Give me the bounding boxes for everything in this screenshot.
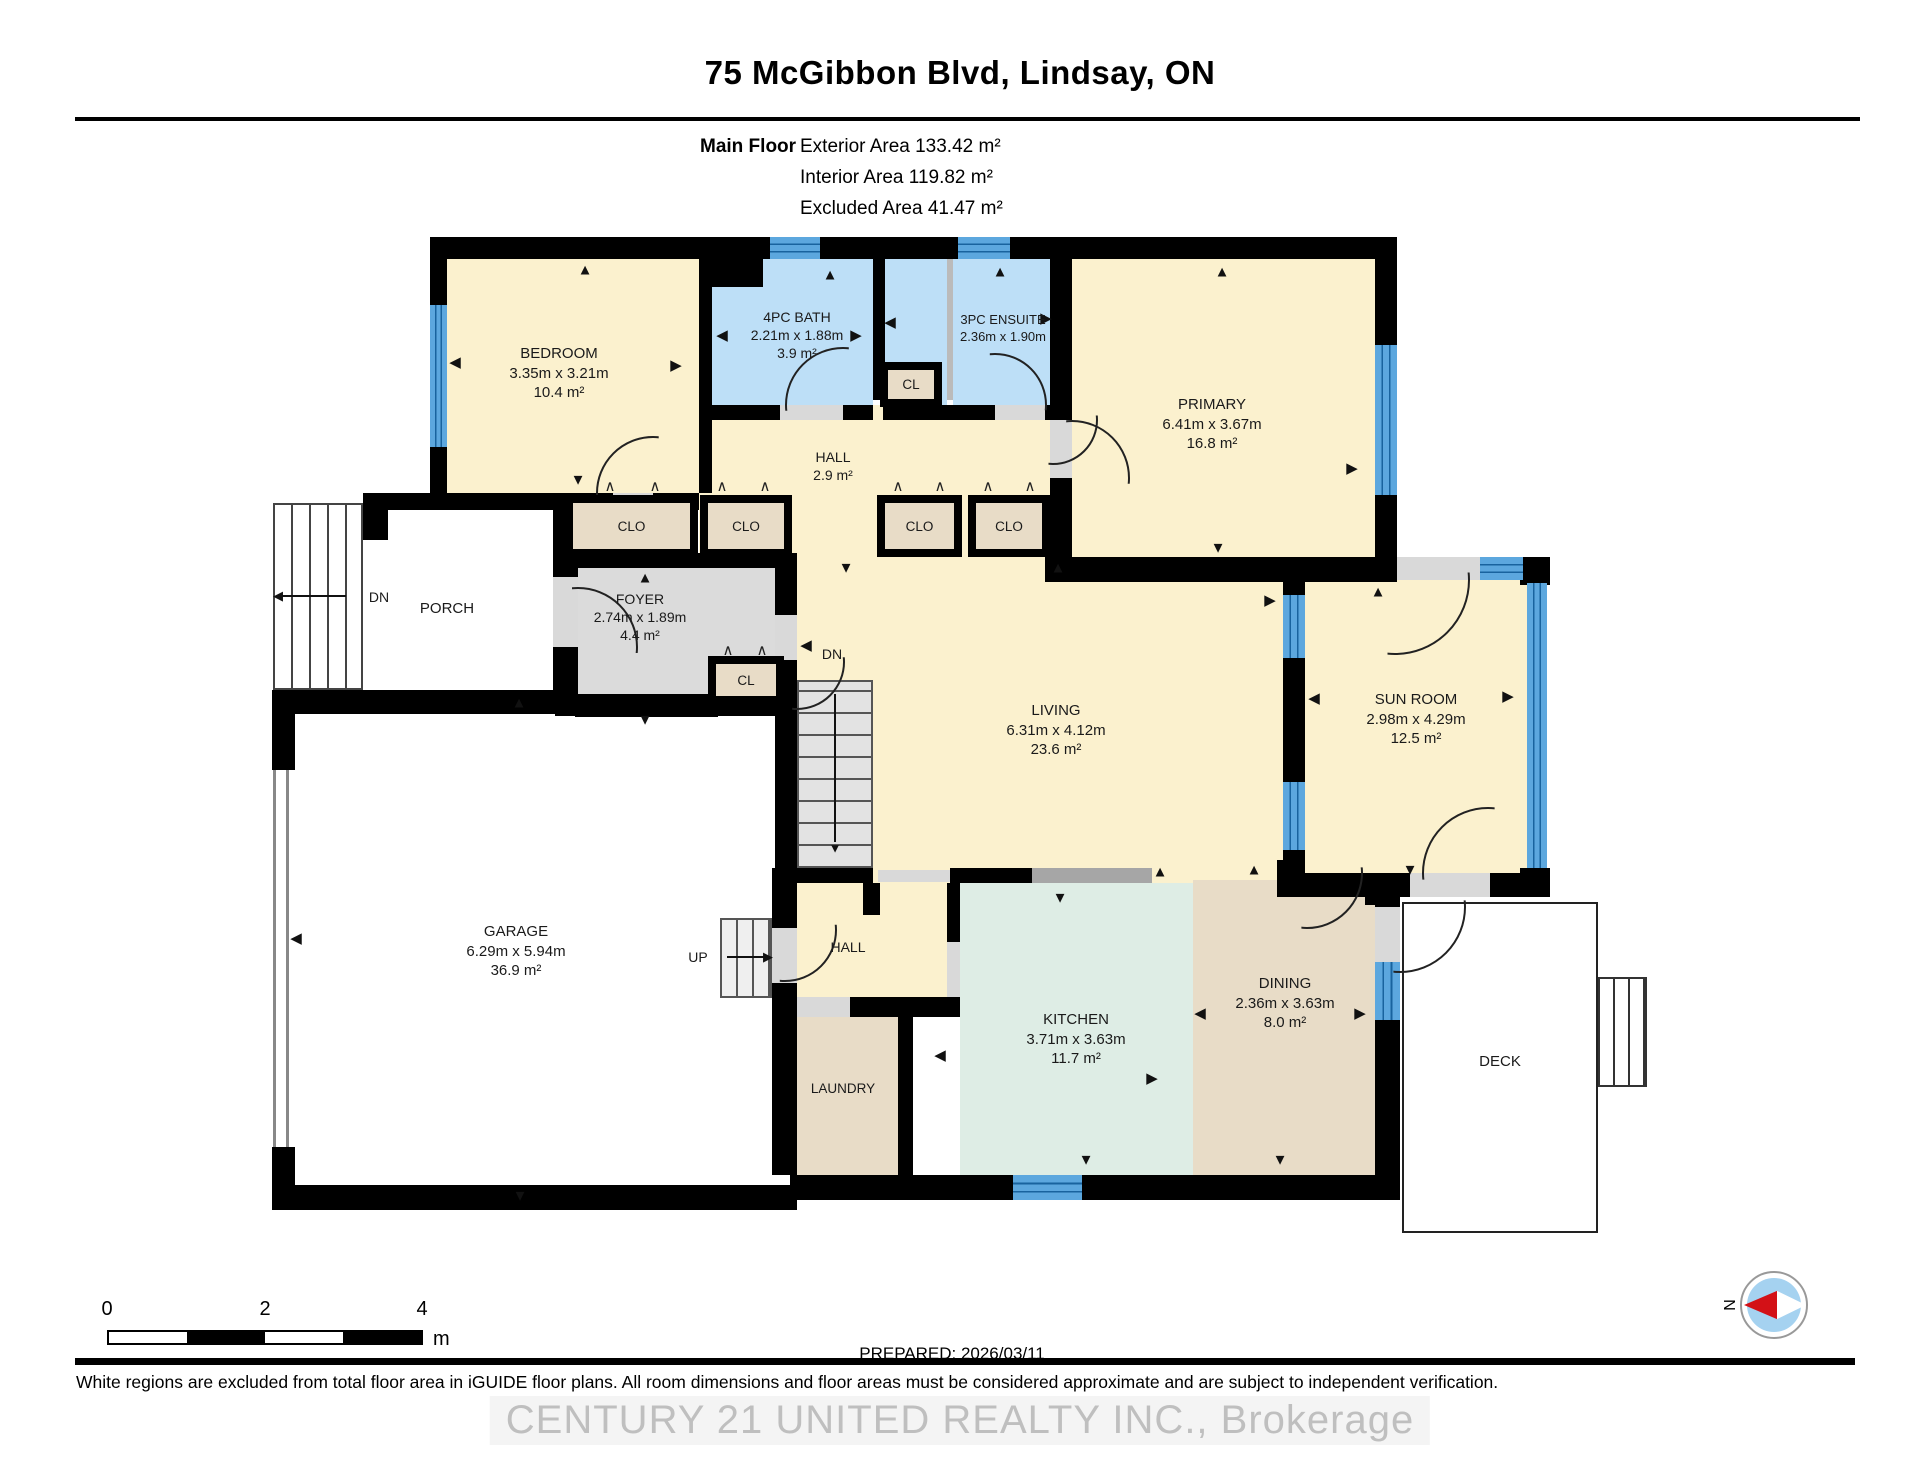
room-label-line: FOYER [594,590,687,608]
room-label-line: DN [369,588,389,606]
room-label-line: 2.98m x 4.29m [1366,710,1465,730]
room-label-line: DECK [1479,1052,1521,1072]
closet-label: CLO [618,519,646,534]
window [1375,345,1397,495]
wall [1277,860,1303,897]
direction-arrow: ◀ [800,636,812,654]
window [1013,1175,1082,1200]
room-label: LIVING6.31m x 4.12m23.6 m² [1006,701,1105,760]
room-label-line: KITCHEN [1026,1010,1125,1030]
room-label: KITCHEN3.71m x 3.63m11.7 m² [1026,1010,1125,1069]
room-label-line: BEDROOM [509,344,608,364]
closet-cl: CL [880,362,942,407]
room-label-line: DINING [1235,974,1334,994]
stair-arrow-line [282,595,346,597]
room-label-line: DN [822,645,842,663]
bifold-mark: ∧ [605,477,616,495]
wall [775,553,797,615]
wall [430,237,1397,259]
direction-arrow: ▲ [1153,864,1168,881]
direction-arrow: ◀ [884,313,896,331]
direction-arrow: ▶ [1354,1004,1366,1022]
wall [797,868,873,883]
bifold-mark: ∧ [983,477,994,495]
stair-arrow-head: ◀ [273,588,283,604]
window [1480,557,1523,580]
room-label-line: 11.7 m² [1026,1049,1125,1069]
wall [1050,259,1072,420]
wall [947,883,960,942]
closet-clo: CLO [968,495,1050,557]
bifold-mark: ∧ [1025,477,1036,495]
footer-divider [75,1358,1855,1365]
room-label-line: 3.71m x 3.63m [1026,1030,1125,1050]
room-label: UP [688,948,707,966]
door-opening [775,615,797,660]
bifold-mark: ∧ [935,477,946,495]
wall [272,1185,797,1210]
wall [1490,873,1550,897]
direction-arrow: ▶ [1502,687,1514,705]
direction-arrow: ▼ [1211,540,1226,557]
wall [1520,557,1550,585]
wall [1375,1020,1400,1175]
wall [1375,237,1397,345]
counter-strip [1030,868,1152,883]
scale-bar [107,1330,423,1345]
direction-arrow: ▲ [1051,560,1066,577]
room-label-line: 3PC ENSUITE [960,312,1046,329]
wall [272,714,295,770]
direction-arrow: ◀ [934,1046,946,1064]
direction-arrow: ▶ [1146,1069,1158,1087]
room-label-line: 3.35m x 3.21m [509,364,608,384]
deck-steps [1598,977,1647,1087]
room-label-line: 23.6 m² [1006,740,1105,760]
stair-arrow-head: ▶ [763,949,773,965]
brokerage-watermark: CENTURY 21 UNITED REALTY INC., Brokerage [490,1396,1430,1445]
room-label: 4PC BATH2.21m x 1.88m3.9 m² [751,308,844,363]
room-label-line: 16.8 m² [1162,434,1261,454]
wall [850,997,960,1017]
room-label: PORCH [420,599,474,619]
bifold-mark: ∧ [650,477,661,495]
direction-arrow: ▼ [1079,1152,1094,1169]
room-label-line: SUN ROOM [1366,690,1465,710]
wall [863,883,880,915]
room-label-line: 8.0 m² [1235,1013,1334,1033]
direction-arrow: ▼ [513,1188,528,1205]
room-label-line: LIVING [1006,701,1105,721]
room-label-line: 2.36m x 1.90m [960,329,1046,346]
direction-arrow: ◀ [449,353,461,371]
room-label: BEDROOM3.35m x 3.21m10.4 m² [509,344,608,403]
wall [950,868,1032,883]
closet-label: CLO [732,519,760,534]
scale-tick-4: 4 [416,1298,427,1321]
bifold-mark: ∧ [757,641,768,659]
direction-arrow: ▲ [1247,862,1262,879]
room-label-line: HALL [813,448,853,466]
wall [1375,495,1397,557]
wall [430,259,447,305]
window [1283,595,1305,658]
direction-arrow: ▼ [1053,890,1068,907]
wall [699,405,780,420]
room-label: 3PC ENSUITE2.36m x 1.90m [960,312,1046,346]
direction-arrow: ◀ [1194,1004,1206,1022]
closet-label: CL [902,377,919,392]
room-label-line: PORCH [420,599,474,619]
room-label: HALL2.9 m² [813,448,853,484]
garage-door [273,770,289,1147]
direction-arrow: ▲ [1215,264,1230,281]
room-label: HALL [830,938,865,956]
bifold-mark: ∧ [717,477,728,495]
disclaimer-text: White regions are excluded from total fl… [76,1372,1498,1393]
direction-arrow: ◀ [716,326,728,344]
direction-arrow: ▼ [1403,862,1418,879]
wall [1281,557,1395,580]
window [1283,782,1305,850]
direction-arrow: ▲ [578,262,593,279]
direction-arrow: ▶ [1346,459,1358,477]
ensuite-divider [947,259,953,400]
direction-arrow: ▶ [1264,591,1276,609]
room-label-line: 6.29m x 5.94m [466,942,565,962]
room-label: LAUNDRY [811,1080,875,1098]
window [430,305,447,447]
wall [272,690,575,714]
room-label-line: 36.9 m² [466,961,565,981]
direction-arrow: ▲ [823,267,838,284]
stair-arrow-line [834,694,836,842]
wall [1283,658,1305,782]
room-label-line: 2.21m x 1.88m [751,326,844,344]
door-opening [878,870,950,882]
room-label-line: 12.5 m² [1366,729,1465,749]
room-label-line: 4.4 m² [594,626,687,644]
wall [772,983,797,1175]
wall [898,1017,913,1175]
closet-clo: CLO [700,495,792,557]
room-label: DINING2.36m x 3.63m8.0 m² [1235,974,1334,1033]
closet-label: CL [737,673,754,688]
wall [1082,1175,1400,1200]
room-label-line: 2.36m x 3.63m [1235,994,1334,1014]
direction-arrow: ▼ [1273,1152,1288,1169]
room-label-line: HALL [830,938,865,956]
window [1527,583,1547,868]
closet-label: CLO [995,519,1023,534]
wall [772,868,797,928]
door-opening [793,997,850,1017]
room-label: PRIMARY6.41m x 3.67m16.8 m² [1162,395,1261,454]
direction-arrow: ▼ [638,712,653,729]
direction-arrow: ◀ [290,929,302,947]
room-label-line: 3.9 m² [751,344,844,362]
direction-arrow: ▲ [512,695,527,712]
closet-label: CLO [906,519,934,534]
room-label-line: UP [688,948,707,966]
scale-tick-0: 0 [101,1298,112,1321]
scale-unit: m [433,1328,450,1351]
direction-arrow: ▲ [638,570,653,587]
window [958,237,1010,259]
direction-arrow: ▼ [571,472,586,489]
room-label-line: 10.4 m² [509,383,608,403]
direction-arrow: ▶ [850,326,862,344]
room-label: DN [369,588,389,606]
bifold-mark: ∧ [893,477,904,495]
wall [362,503,388,540]
closet-cl: CL [708,656,784,704]
room-label: GARAGE6.29m x 5.94m36.9 m² [466,922,565,981]
room-label-line: 6.41m x 3.67m [1162,415,1261,435]
room-label-line: 2.74m x 1.89m [594,608,687,626]
room-label: DECK [1479,1052,1521,1072]
closet-clo: CLO [565,495,698,557]
direction-arrow: ▶ [670,356,682,374]
room-label: SUN ROOM2.98m x 4.29m12.5 m² [1366,690,1465,749]
compass-north-label: N [1722,1299,1740,1311]
bifold-mark: ∧ [760,477,771,495]
direction-arrow: ▼ [839,560,854,577]
room-label-line: PRIMARY [1162,395,1261,415]
wall [883,405,995,420]
room-label: FOYER2.74m x 1.89m4.4 m² [594,590,687,645]
scale-tick-2: 2 [259,1298,270,1321]
room-label-line: 2.9 m² [813,466,853,484]
floor-plan-page: 75 McGibbon Blvd, Lindsay, ON Main Floor… [0,0,1920,1484]
wall [699,259,712,493]
floor-plan-canvas: ◀▼▶CLOCLOCLOCLOCLCL∧∧∧∧∧∧∧∧∧∧▲◀▶▼▲◀▶◀▶▲▲… [0,0,1920,1484]
room-label-line: GARAGE [466,922,565,942]
wall [790,1175,1016,1200]
direction-arrow: ◀ [1308,689,1320,707]
room-label-line: 4PC BATH [751,308,844,326]
room-label: DN [822,645,842,663]
door-opening [947,942,960,998]
wall [712,259,763,287]
window [770,237,820,259]
room-label-line: LAUNDRY [811,1080,875,1098]
room-label-line: 6.31m x 4.12m [1006,721,1105,741]
direction-arrow: ▲ [993,264,1008,281]
stair-arrow-head: ▼ [829,841,842,856]
stair-arrow-line [727,956,765,958]
closet-clo: CLO [877,495,962,557]
bifold-mark: ∧ [723,641,734,659]
wall [1283,580,1305,595]
direction-arrow: ▲ [1371,584,1386,601]
